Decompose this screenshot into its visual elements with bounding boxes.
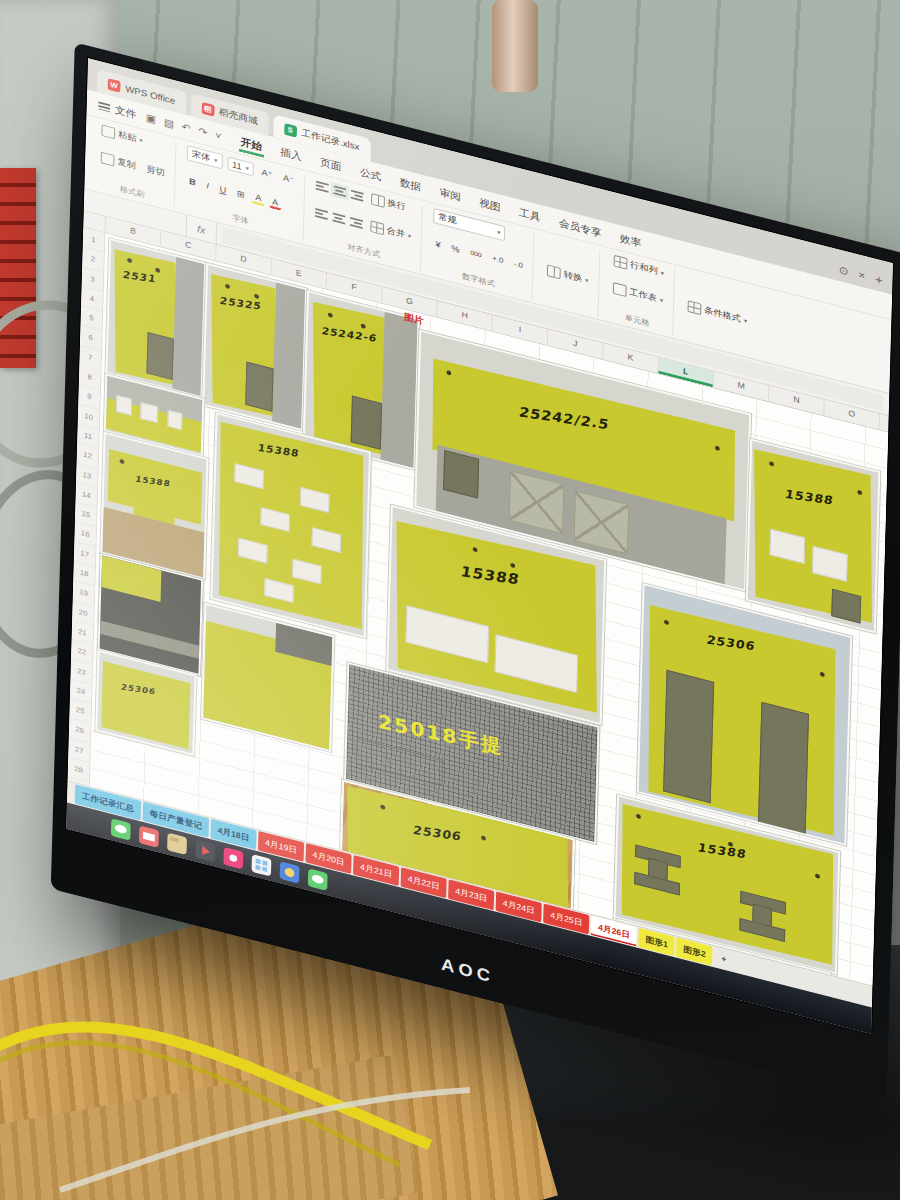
photo-p2[interactable]: 25325 [202,263,307,431]
italic-button[interactable]: I [203,179,212,193]
docer-icon: 稻 [201,102,214,117]
video-player-icon-glyph [202,846,210,857]
align-top-center-icon[interactable] [333,185,346,197]
drill-hole [254,294,259,300]
folder-icon[interactable] [167,833,187,856]
file-menu-button[interactable]: 文件 [98,98,136,121]
quick-icon-1[interactable]: ▤ [164,116,174,130]
close-tab-icon[interactable]: × [858,268,865,282]
spreadsheet-icon: S [284,123,297,138]
drill-hole [155,268,160,274]
shape [116,395,132,416]
ribbon-tab-页面[interactable]: 页面 [318,150,344,178]
align-top-left-icon[interactable] [315,180,328,192]
file-explorer-icon[interactable] [251,854,271,877]
quick-icon-4[interactable]: ˅ [215,129,222,142]
shape [100,621,199,659]
percent-button[interactable]: % [448,241,462,256]
shape [173,257,205,396]
mail-icon[interactable] [139,825,159,848]
font-size-select[interactable]: 11▾ [227,156,254,176]
increase-decimal-button[interactable]: +.0 [489,252,506,266]
paste-icon [101,124,115,139]
shape [351,396,382,450]
quick-icon-3[interactable]: ↷ [198,125,207,139]
wechat-icon[interactable] [111,818,131,841]
worksheet-icon [613,282,627,297]
thousands-button[interactable]: 000 [467,248,484,260]
ribbon-tab-工具[interactable]: 工具 [517,201,543,229]
align-left-icon[interactable] [315,208,328,220]
photo-p5[interactable]: 15388 [746,439,881,634]
font-name-select[interactable]: 宋体▾ [187,145,223,169]
worksheet-button[interactable]: 工作表▾ [610,280,667,308]
photo-p8[interactable]: 15388 [210,412,370,638]
shape [272,282,305,428]
convert-button[interactable]: 转换▾ [544,263,591,288]
convert-icon [547,265,561,280]
ribbon-tab-插入[interactable]: 插入 [278,140,304,168]
underline-button[interactable]: U [217,182,230,197]
wrap-text-button[interactable]: 换行 [368,191,409,215]
copy-button[interactable]: 复制 [98,150,139,174]
photo-p10[interactable]: 25306 [637,583,852,846]
ceiling-pipe [492,0,538,92]
convert-group: 转换▾ [537,235,601,318]
hamburger-icon [98,101,110,112]
shape [245,362,273,412]
merge-icon [370,220,384,235]
bold-button[interactable]: B [186,174,199,189]
shape [167,410,183,431]
drill-hole [225,283,230,289]
mail-icon-glyph [143,832,155,842]
shape [664,670,715,803]
wrap-icon [371,193,385,208]
browser-icon[interactable] [280,861,300,884]
photos-icon[interactable] [223,847,243,870]
borders-button[interactable]: ⊞ [234,187,248,202]
ribbon-tab-视图[interactable]: 视图 [477,191,503,219]
grow-font-button[interactable]: A⁺ [258,165,275,181]
browser-icon-glyph [285,867,295,878]
font-color-button[interactable]: A [269,195,281,210]
ribbon-tab-审阅[interactable]: 审阅 [437,181,463,209]
rows-columns-icon [613,255,627,270]
cut-button[interactable]: 剪切 [143,162,168,181]
photos-icon-glyph [229,854,237,863]
wechat-chat-icon[interactable] [308,868,328,891]
new-tab-icon[interactable]: + [875,272,883,288]
shape [443,450,479,499]
shape [356,738,443,787]
quick-icon-2[interactable]: ↶ [181,120,190,134]
photo-p1[interactable]: 2531 [105,238,206,398]
shape [758,702,809,835]
shrink-font-button[interactable]: A⁻ [280,171,297,187]
wechat-icon-glyph [115,824,127,835]
copy-icon [101,152,115,167]
drill-hole [769,461,774,467]
ribbon-tab-数据[interactable]: 数据 [398,171,424,199]
currency-button[interactable]: ¥ [432,237,443,251]
file-menu-label: 文件 [115,103,137,122]
conditional-format-button[interactable]: 条件格式▾ [684,299,750,329]
shape [381,312,418,468]
fill-color-button[interactable]: A [252,191,264,206]
sync-icon[interactable]: ⊙ [839,263,849,278]
align-center-icon[interactable] [332,212,345,224]
ribbon-tab-公式[interactable]: 公式 [358,161,384,189]
ribbon-tab-效率[interactable]: 效率 [618,227,644,255]
file-explorer-icon-glyph [255,859,267,873]
ribbon-tab-开始[interactable]: 开始 [238,130,264,158]
wechat-chat-icon-glyph [312,874,324,885]
shape [101,661,190,750]
decrease-decimal-button[interactable]: -.0 [511,258,526,271]
wps-icon: W [108,78,121,93]
shape [147,332,174,380]
merge-cells-button[interactable]: 合并▾ [367,219,414,244]
quick-icon-0[interactable]: ▣ [146,111,156,125]
folder-icon-glyph [170,837,179,843]
conditional-format-icon [687,300,701,315]
align-top-right-icon[interactable] [350,189,363,201]
video-player-icon[interactable] [195,840,215,863]
align-right-icon[interactable] [350,216,363,228]
